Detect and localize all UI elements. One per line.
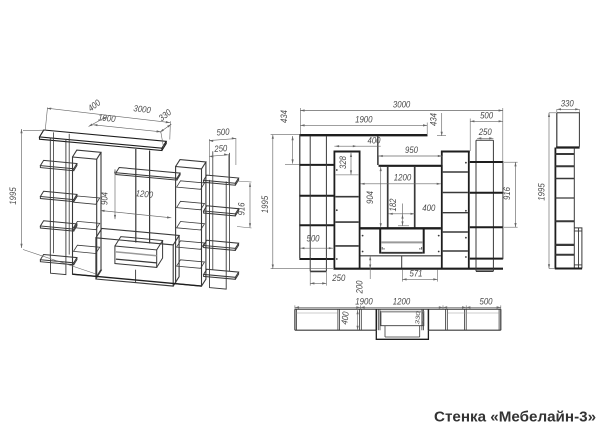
svg-text:1900: 1900 (355, 297, 372, 307)
svg-text:328: 328 (338, 156, 348, 169)
svg-text:1200: 1200 (394, 172, 411, 182)
svg-text:330: 330 (561, 99, 574, 109)
svg-text:500: 500 (216, 127, 230, 138)
svg-text:1995: 1995 (537, 182, 547, 200)
svg-text:Стенка «Мебелайн-3»: Стенка «Мебелайн-3» (434, 409, 596, 426)
svg-text:330: 330 (415, 310, 422, 324)
svg-text:1200: 1200 (135, 188, 153, 200)
svg-text:3000: 3000 (133, 103, 151, 115)
svg-text:1995: 1995 (8, 186, 18, 204)
svg-text:916: 916 (237, 203, 247, 216)
svg-text:500: 500 (480, 297, 493, 307)
svg-text:250: 250 (478, 127, 492, 137)
svg-text:1995: 1995 (260, 195, 270, 213)
svg-text:434: 434 (279, 110, 289, 123)
svg-text:400: 400 (422, 203, 435, 213)
svg-text:500: 500 (480, 110, 493, 120)
svg-text:500: 500 (307, 234, 320, 244)
svg-text:182: 182 (388, 199, 398, 212)
svg-text:916: 916 (502, 187, 512, 200)
svg-text:904: 904 (365, 191, 375, 204)
svg-text:950: 950 (405, 145, 418, 155)
svg-text:434: 434 (428, 113, 438, 126)
svg-text:1900: 1900 (98, 112, 116, 124)
svg-text:1900: 1900 (355, 115, 372, 125)
svg-text:400: 400 (339, 311, 351, 325)
svg-text:904: 904 (100, 192, 110, 205)
svg-text:400: 400 (368, 135, 381, 145)
svg-text:250: 250 (331, 273, 345, 283)
svg-text:250: 250 (213, 143, 228, 154)
svg-text:571: 571 (410, 269, 423, 279)
svg-text:1200: 1200 (393, 297, 410, 307)
svg-text:200: 200 (354, 281, 364, 295)
svg-text:3000: 3000 (393, 100, 410, 110)
